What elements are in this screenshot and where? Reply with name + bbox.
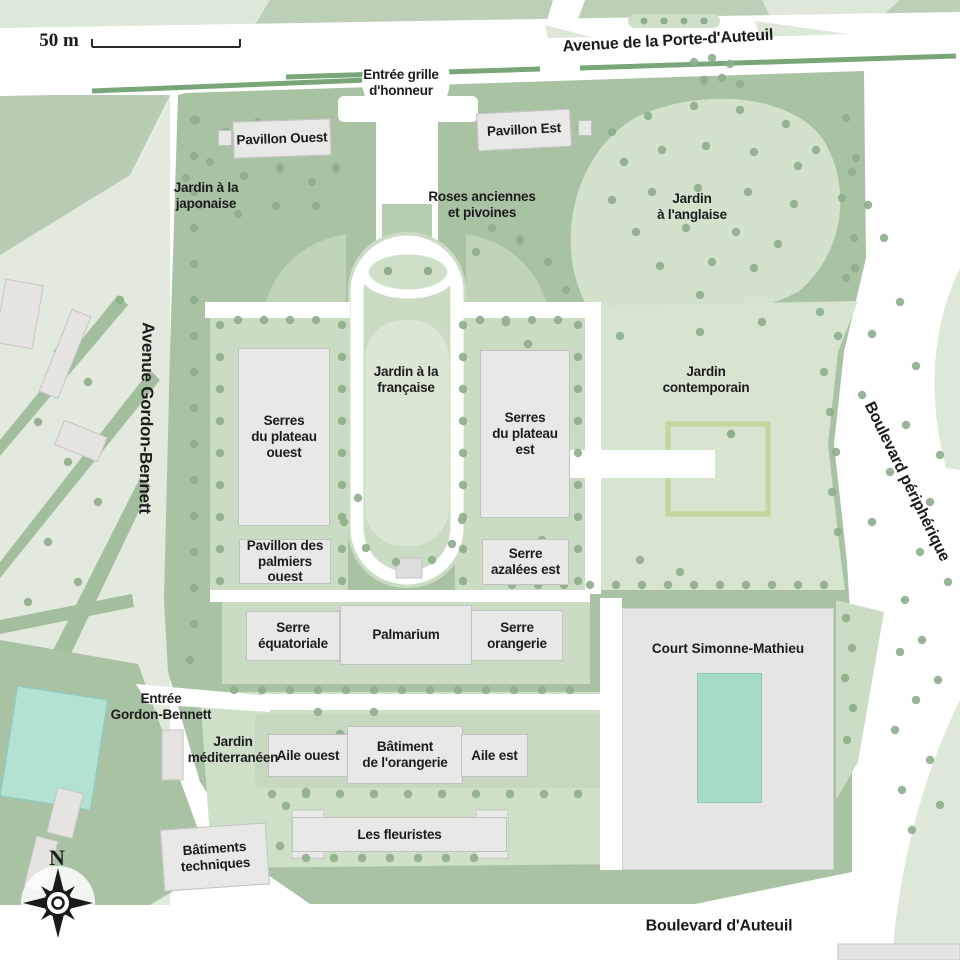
pavillon-est-label: Pavillon Est (487, 120, 562, 140)
roses-anciennes-label: Roses anciennes et pivoines (428, 189, 535, 221)
building-pavillon-ouest: Pavillon Ouest (232, 118, 331, 158)
les-fleuristes-label: Les fleuristes (357, 827, 441, 843)
small-building-east-gate (578, 120, 592, 136)
garden-map: Pavillon Ouest Pavillon Est Serres du pl… (0, 0, 960, 960)
scale-label: 50 m (39, 30, 79, 52)
building-serre-azalees-est: Serre azalées est (482, 539, 569, 585)
street-label-auteuil: Boulevard d'Auteuil (646, 918, 793, 937)
serres-plateau-est-label: Serres du plateau est (492, 410, 558, 458)
building-serre-orangerie: Serre orangerie (471, 610, 563, 661)
building-les-fleuristes: Les fleuristes (292, 817, 507, 852)
serre-equatoriale-label: Serre équatoriale (258, 620, 328, 652)
jardin-japonaise-label: Jardin à la japonaise (174, 180, 239, 212)
jardin-anglaise-label: Jardin à l'anglaise (657, 191, 727, 223)
small-building-west-gate (218, 130, 232, 146)
street-label-gordon-bennett: Avenue Gordon-Bennett (134, 322, 157, 514)
jardin-mediterraneen-label: Jardin méditerranéen (188, 734, 278, 766)
compass-north-label: N (49, 845, 65, 871)
court-simonne-mathieu-label: Court Simonne-Mathieu (623, 641, 833, 656)
pavillon-ouest-label: Pavillon Ouest (236, 129, 327, 148)
batiment-orangerie-label: Bâtiment de l'orangerie (362, 739, 447, 771)
building-aile-est: Aile est (461, 734, 528, 777)
building-serre-equatoriale: Serre équatoriale (246, 611, 340, 661)
compass-rose (21, 866, 95, 940)
aile-ouest-label: Aile ouest (277, 748, 340, 764)
palmarium-label: Palmarium (372, 627, 439, 643)
building-serres-plateau-ouest: Serres du plateau ouest (238, 348, 330, 526)
serre-orangerie-label: Serre orangerie (487, 620, 547, 652)
building-palmarium: Palmarium (340, 605, 472, 665)
building-batiment-orangerie: Bâtiment de l'orangerie (347, 726, 463, 784)
building-pavillon-est: Pavillon Est (476, 109, 572, 152)
batiments-techniques-label: Bâtiments techniques (179, 839, 250, 876)
building-batiments-techniques: Bâtiments techniques (160, 822, 270, 891)
swimming-pool (0, 685, 108, 810)
pavillon-palmiers-ouest-label: Pavillon des palmiers ouest (240, 538, 330, 586)
building-pavillon-palmiers-ouest: Pavillon des palmiers ouest (239, 539, 331, 584)
southeast-building (838, 944, 960, 960)
jardin-contemporain-label: Jardin contemporain (663, 364, 750, 396)
aile-est-label: Aile est (471, 748, 517, 764)
entrance-gordon-bennett-label: Entrée Gordon-Bennett (111, 691, 212, 723)
serres-plateau-ouest-label: Serres du plateau ouest (251, 413, 317, 461)
building-aile-ouest: Aile ouest (268, 734, 348, 777)
entrance-grille-honneur-label: Entrée grille d'honneur (363, 67, 438, 99)
tennis-court (697, 673, 762, 803)
jardin-contemporain-area (597, 301, 858, 590)
building-serres-plateau-est: Serres du plateau est (480, 350, 570, 518)
building-court-simonne-mathieu: Court Simonne-Mathieu (622, 608, 834, 870)
serre-azalees-est-label: Serre azalées est (491, 546, 560, 578)
jardin-francaise-label: Jardin à la française (374, 364, 439, 396)
pond (364, 250, 452, 294)
